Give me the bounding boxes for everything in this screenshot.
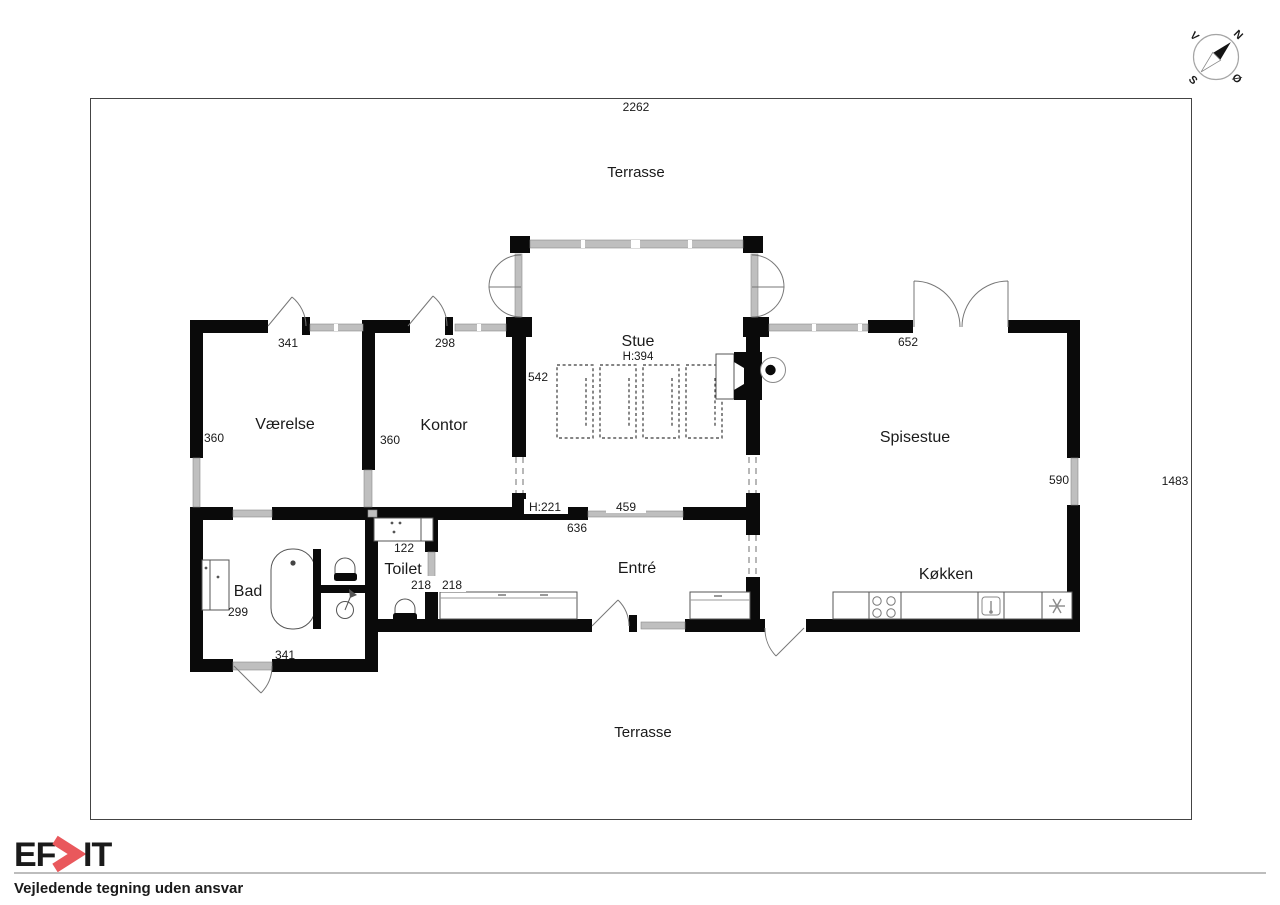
dim-vaerelse-depth: 360 bbox=[204, 431, 224, 445]
room-label-toilet: Toilet bbox=[384, 561, 422, 578]
dim-kontor-width: 298 bbox=[435, 336, 455, 350]
entre-wardrobes bbox=[440, 592, 750, 619]
dim-total-height: 1483 bbox=[1162, 474, 1189, 488]
compass-label-south: S bbox=[1186, 73, 1200, 87]
room-label-entre: Entré bbox=[618, 560, 656, 577]
dim-toilet-door-b: 218 bbox=[442, 578, 462, 592]
wc-seat bbox=[393, 613, 417, 622]
footer: EF IT Vejledende tegning uden ansvar bbox=[14, 836, 1266, 897]
floorplan-page: 2262 Terrasse Terrasse 1483 Stue H:394 V… bbox=[0, 0, 1280, 905]
room-label-vaerelse: Værelse bbox=[255, 416, 315, 433]
dim-bad-depth: 299 bbox=[228, 605, 248, 619]
room-label-stue: Stue bbox=[622, 333, 655, 350]
ceiling-height-entre: H:221 bbox=[529, 500, 561, 514]
floorplan-canvas: 2262 Terrasse Terrasse 1483 Stue H:394 V… bbox=[0, 0, 1280, 905]
dim-total-width: 2262 bbox=[623, 100, 650, 114]
dim-stue-depth: 542 bbox=[528, 370, 548, 384]
room-label-spisestue: Spisestue bbox=[880, 429, 950, 446]
dim-kontor-depth: 360 bbox=[380, 433, 400, 447]
labels: 2262 Terrasse Terrasse 1483 Stue H:394 V… bbox=[204, 100, 1189, 741]
plot-boundary bbox=[91, 99, 1192, 820]
dim-vaerelse-width: 341 bbox=[278, 336, 298, 350]
compass-label-north: N bbox=[1231, 28, 1245, 42]
compass-rose: N S V Ø bbox=[1165, 7, 1267, 109]
dim-toilet-door-a: 218 bbox=[411, 578, 431, 592]
room-label-kontor: Kontor bbox=[420, 417, 468, 434]
bathtub-drain bbox=[290, 560, 295, 565]
dim-toilet-width: 122 bbox=[394, 541, 414, 555]
room-label-bad: Bad bbox=[234, 583, 262, 600]
fireplace bbox=[716, 352, 786, 400]
stue-furniture bbox=[557, 365, 722, 438]
ceiling-height-stue: H:394 bbox=[623, 351, 654, 363]
logo-text-it: IT bbox=[83, 836, 112, 874]
dim-stue-window: 459 bbox=[616, 500, 636, 514]
disclaimer-text: Vejledende tegning uden ansvar bbox=[14, 880, 243, 897]
logo-chevron-icon bbox=[55, 840, 77, 868]
terrace-bottom-label: Terrasse bbox=[614, 724, 672, 741]
dim-bad-width: 341 bbox=[275, 648, 295, 662]
drain-dot bbox=[989, 610, 993, 614]
room-label-koekken: Køkken bbox=[919, 566, 973, 583]
bathroom-fixtures bbox=[202, 549, 365, 629]
dim-entre-wall: 636 bbox=[567, 521, 587, 535]
dim-koekken-right: 590 bbox=[1049, 473, 1069, 487]
terrace-top-label: Terrasse bbox=[607, 164, 665, 181]
kitchen-counter bbox=[833, 592, 1072, 619]
chimney bbox=[734, 352, 762, 400]
dim-spisestue-width: 652 bbox=[898, 335, 918, 349]
logo-text-ef: EF bbox=[14, 836, 56, 874]
wc-seat bbox=[334, 573, 357, 581]
wood-stove-dot bbox=[765, 365, 775, 375]
